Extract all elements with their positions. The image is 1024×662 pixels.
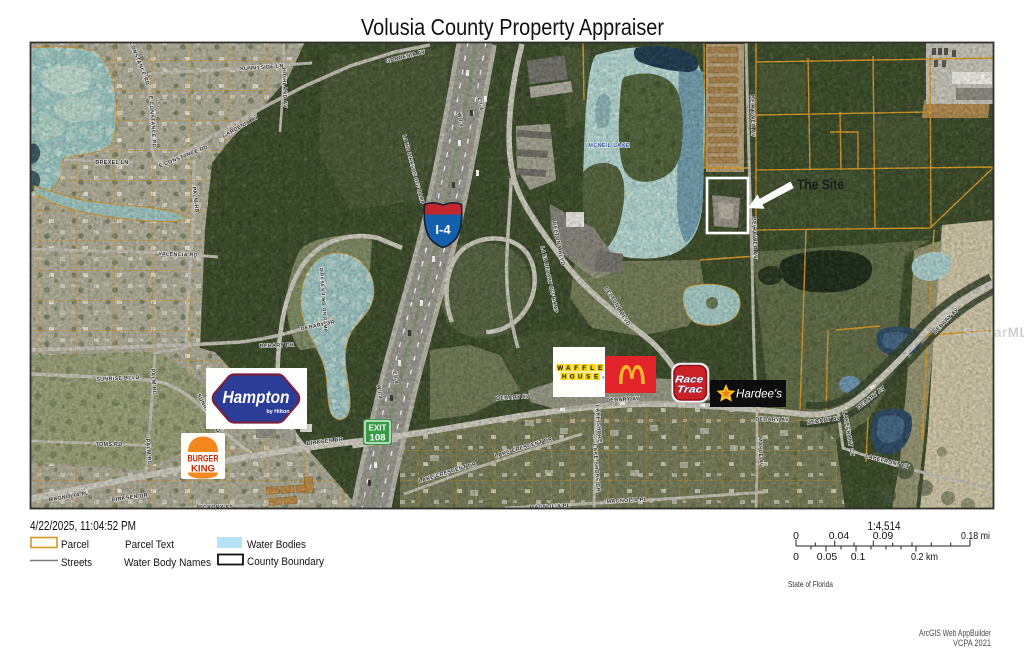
svg-text:0.05: 0.05 [817,551,838,563]
svg-text:County Boundary: County Boundary [247,556,324,568]
svg-text:0.09: 0.09 [873,530,894,542]
svg-text:Volusia County Property Apprai: Volusia County Property Appraiser [361,14,664,40]
svg-text:Hardee's: Hardee's [736,387,782,401]
svg-text:0.1: 0.1 [851,551,866,563]
svg-text:The Site: The Site [797,178,844,194]
svg-text:BURGER: BURGER [188,454,219,464]
svg-text:VCPA 2021: VCPA 2021 [953,638,991,648]
svg-text:®: ® [602,376,605,380]
svg-text:U: U [578,374,583,381]
svg-text:0.04: 0.04 [829,530,850,542]
svg-text:Trac: Trac [676,385,704,396]
svg-text:F: F [582,365,586,372]
svg-text:O: O [570,374,575,381]
svg-text:0.18 mi: 0.18 mi [961,530,990,542]
svg-text:S: S [586,374,590,381]
svg-text:Water Bodies: Water Bodies [247,539,306,551]
svg-text:0: 0 [793,551,799,563]
svg-text:A: A [566,365,571,372]
svg-text:L: L [590,365,594,372]
svg-text:108: 108 [370,433,386,443]
svg-text:Streets: Streets [61,557,92,569]
svg-text:Parcel Text: Parcel Text [125,539,174,551]
svg-text:StellarMLS: StellarMLS [963,325,1024,340]
svg-text:Water Body Names: Water Body Names [124,557,211,569]
svg-text:E: E [594,374,598,381]
svg-text:0.2 km: 0.2 km [911,551,938,563]
svg-text:W: W [557,365,563,372]
svg-text:H: H [562,374,567,381]
svg-text:I-4: I-4 [435,222,451,237]
svg-text:F: F [574,365,578,372]
svg-text:0: 0 [793,530,799,542]
svg-text:Parcel: Parcel [61,539,89,551]
svg-text:4/22/2025, 11:04:52 PM: 4/22/2025, 11:04:52 PM [30,519,136,533]
svg-text:by Hilton: by Hilton [266,409,289,415]
svg-text:E: E [598,365,602,372]
svg-text:State of Florida: State of Florida [788,579,833,589]
svg-text:EXIT: EXIT [369,424,387,433]
svg-text:ArcGIS Web AppBuilder: ArcGIS Web AppBuilder [919,628,991,638]
svg-text:Hampton: Hampton [223,387,290,407]
